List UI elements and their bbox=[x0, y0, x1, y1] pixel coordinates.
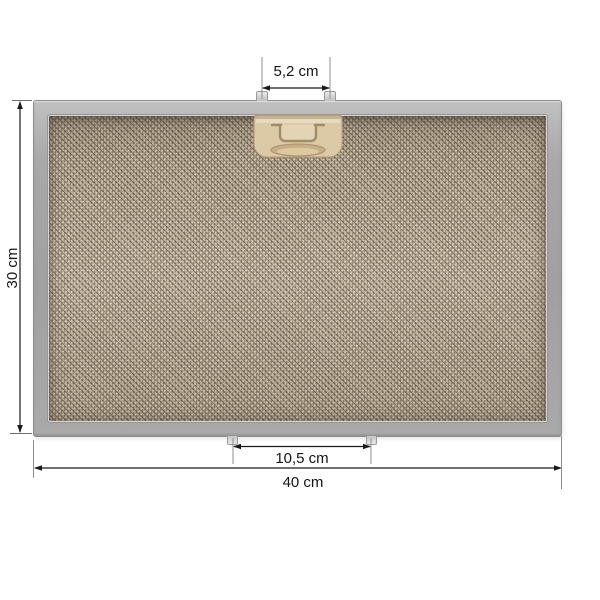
bottom-pin-left bbox=[227, 436, 238, 445]
clip-top-shadow bbox=[255, 115, 341, 119]
dim-top-spacing-label: 5,2 cm bbox=[273, 63, 318, 81]
product-diagram: 5,2 cm 30 cm 10,5 cm 40 cm bbox=[0, 0, 600, 600]
dim-width-label: 40 cm bbox=[283, 474, 324, 492]
clip-handle bbox=[252, 114, 344, 160]
dim-bottom-spacing-label: 10,5 cm bbox=[275, 450, 328, 468]
bottom-pin-right bbox=[366, 436, 377, 445]
clip-highlight bbox=[256, 119, 340, 123]
filter-mesh bbox=[48, 115, 547, 422]
top-pin-left bbox=[256, 91, 268, 101]
clip-latch-groove bbox=[280, 125, 316, 141]
dim-height-label: 30 cm bbox=[4, 228, 22, 308]
clip-thumb-recess-inner bbox=[277, 148, 319, 156]
top-pin-right bbox=[324, 91, 336, 101]
